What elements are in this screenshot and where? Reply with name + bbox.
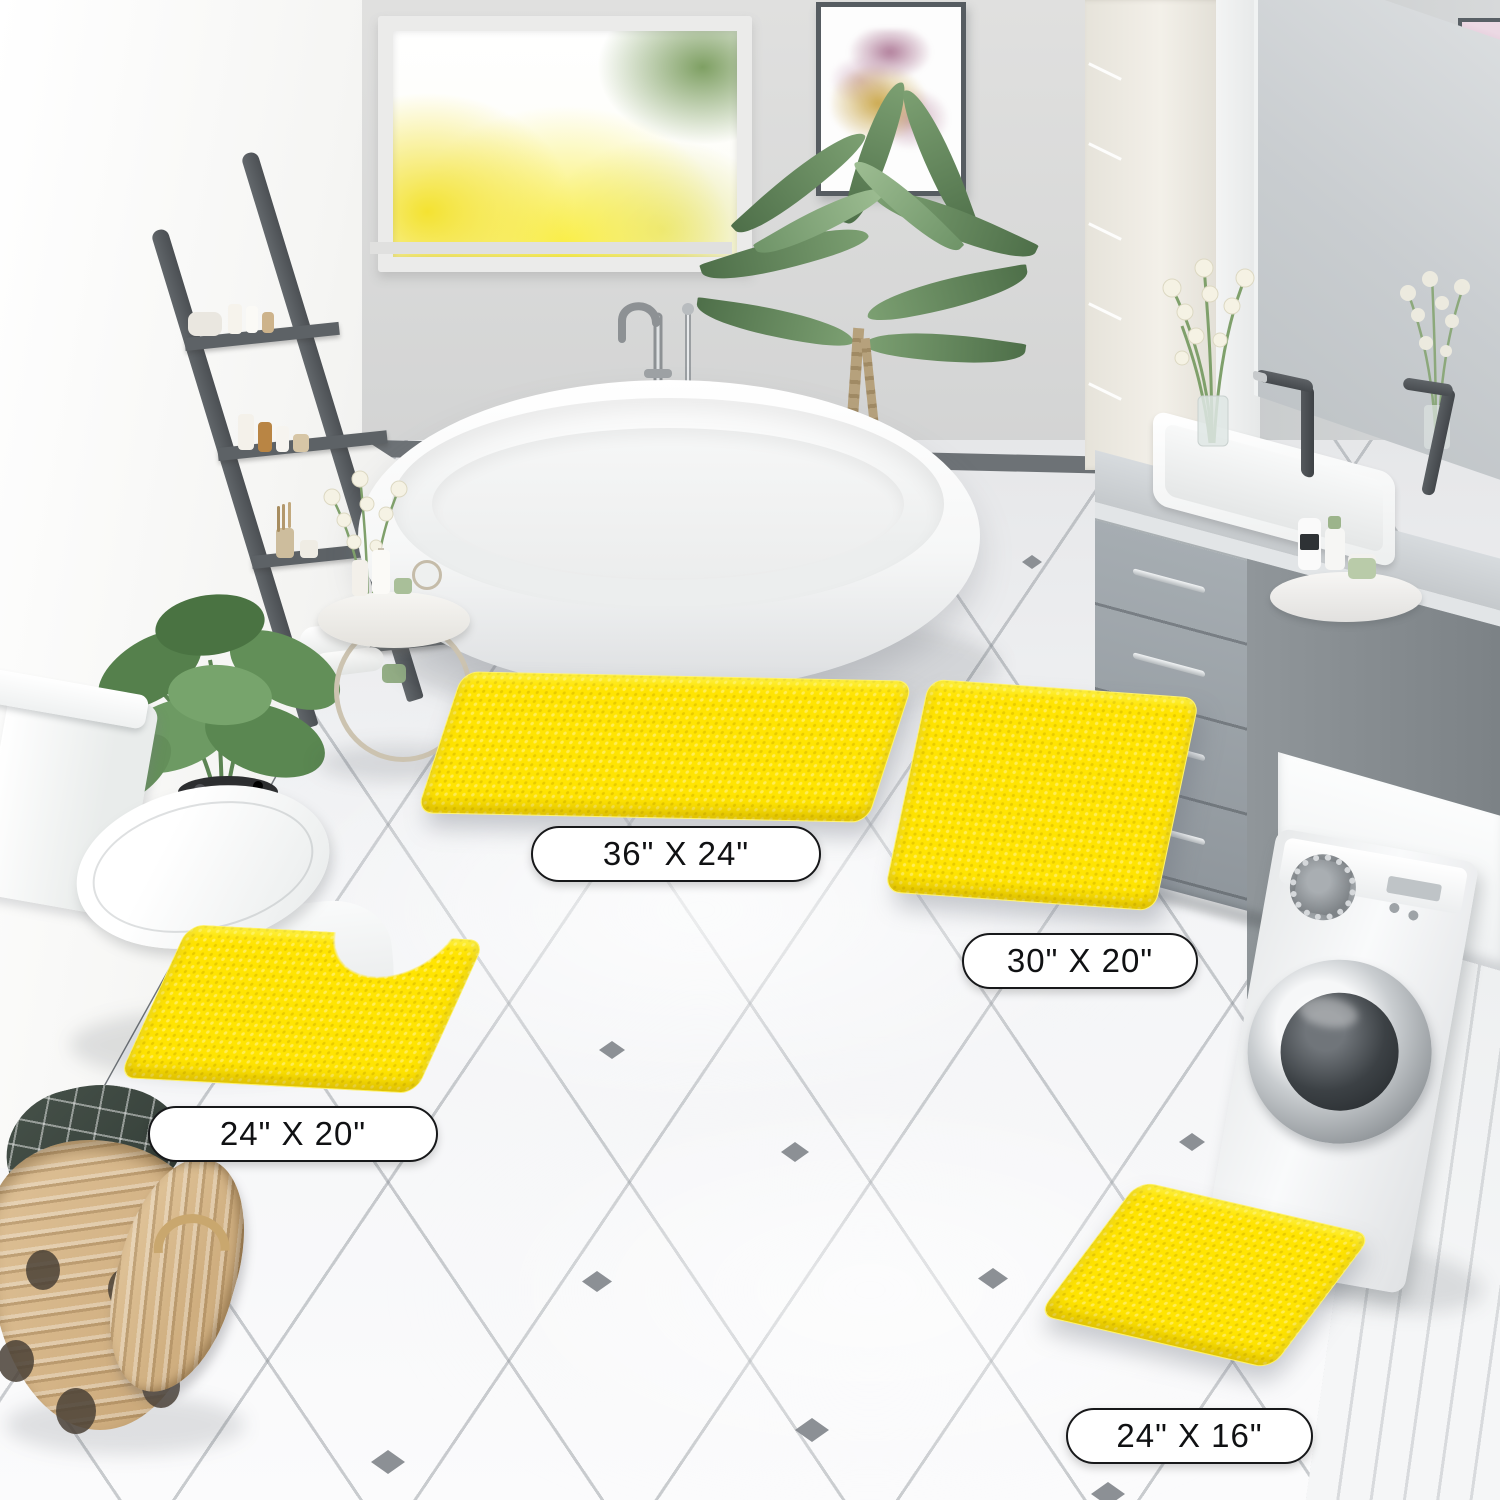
window-sill	[370, 242, 732, 254]
cosmetic-jar	[394, 578, 412, 594]
size-label-text: 36" X 24"	[603, 835, 749, 873]
cabinet-shelf-edge	[1088, 302, 1122, 320]
cosmetic-bottle	[352, 560, 368, 596]
cosmetic-pump	[372, 550, 390, 594]
cabinet-shelf-edge	[1088, 222, 1122, 240]
side-table-top	[318, 592, 470, 648]
toiletry-jar	[293, 434, 309, 452]
basket-dot	[56, 1388, 96, 1434]
toiletry-pump-bottle	[238, 414, 254, 450]
bathtub-basin	[432, 428, 904, 580]
drawer-handle	[1133, 652, 1205, 677]
large-rectangle-rug	[416, 671, 913, 822]
basket-dot	[0, 1340, 34, 1382]
washer-door	[1233, 945, 1446, 1158]
pump-bottle-cap	[1328, 516, 1341, 529]
toiletry-bottle	[262, 312, 274, 333]
cabinet-shelf-edge	[1088, 62, 1122, 80]
toiletry-bottle	[276, 426, 289, 452]
size-label-text: 30" X 20"	[1007, 942, 1153, 980]
toiletry-glass-jar	[188, 312, 222, 336]
round-mirror	[412, 560, 442, 590]
counter-tray	[1270, 572, 1422, 622]
washer-button	[1389, 902, 1401, 914]
drawer-handle	[1133, 568, 1205, 593]
green-cream-jar	[1348, 558, 1376, 579]
size-label-30x20: 30" X 20"	[962, 933, 1198, 989]
size-label-24x20: 24" X 20"	[148, 1106, 438, 1162]
toiletry-amber-bottle	[258, 422, 272, 452]
pump-bottle	[1325, 528, 1345, 570]
toiletry-bottle	[246, 306, 258, 333]
toiletry-bottle	[228, 304, 242, 334]
size-label-text: 24" X 16"	[1116, 1417, 1262, 1455]
cabinet-shelf-edge	[1088, 142, 1122, 160]
sink-faucet	[1301, 383, 1314, 478]
bathroom-product-scene: 36" X 24" 30" X 20" 24" X 20" 24" X 16"	[0, 0, 1500, 1500]
medium-rectangle-rug	[884, 679, 1200, 912]
basket-dot	[26, 1250, 60, 1290]
size-label-text: 24" X 20"	[220, 1115, 366, 1153]
size-label-36x24: 36" X 24"	[531, 826, 821, 882]
size-label-24x16: 24" X 16"	[1066, 1408, 1313, 1464]
lotion-bottle-label	[1300, 534, 1319, 550]
basket-lid-handle	[153, 1213, 231, 1286]
vanity-flowers	[1152, 248, 1272, 448]
